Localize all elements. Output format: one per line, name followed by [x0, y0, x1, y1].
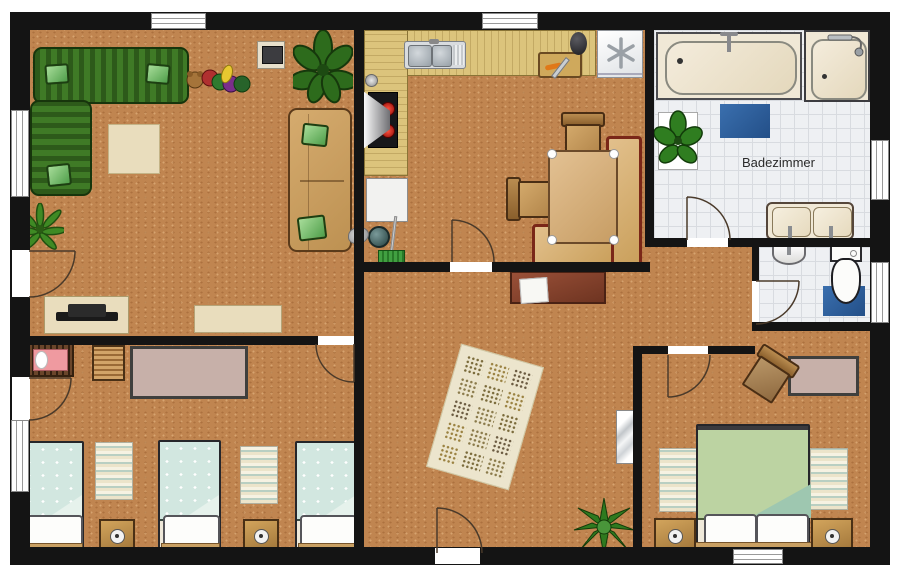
bathroom-plant	[652, 110, 704, 170]
wall-bath-hall-a	[645, 238, 687, 247]
door-gap-kids-left	[12, 377, 30, 420]
wall-wc-bottom	[752, 322, 870, 331]
bedside-rug	[240, 446, 278, 504]
door-gap-living-left	[12, 250, 30, 297]
sink-faucet	[429, 39, 439, 44]
single-bed-2	[158, 440, 221, 556]
pepper-mill	[570, 32, 587, 55]
wall-wc-left-a	[752, 247, 759, 281]
throw-pillow	[44, 63, 69, 85]
bedside-rug	[810, 448, 848, 510]
window-top-1	[151, 13, 206, 29]
bath-mat-blue	[720, 104, 770, 138]
double-washbasin	[766, 202, 854, 240]
wall-shelf	[194, 305, 282, 333]
bedside-rug	[659, 448, 697, 512]
wall-bath-hall-b	[728, 238, 870, 247]
wall-mirror	[616, 410, 634, 464]
tub-drain	[677, 58, 683, 64]
double-bed	[696, 424, 810, 554]
shower-stall	[804, 30, 870, 102]
door-gap-kids-bedroom	[318, 336, 354, 345]
mauve-rug-master	[788, 356, 859, 396]
door-gap-kitchen	[450, 262, 492, 272]
waste-bin	[368, 226, 390, 248]
window-right-2	[871, 262, 889, 323]
shower-drain	[822, 74, 827, 79]
window-top-2	[482, 13, 538, 29]
cutting-board	[538, 52, 582, 78]
throw-pillow	[145, 63, 171, 85]
wall-kids-hall	[354, 345, 364, 547]
slatted-dresser	[92, 345, 125, 381]
wall-tv	[257, 41, 285, 69]
wall-kitchen-hall-a	[354, 262, 450, 272]
kitchen-sink	[404, 41, 466, 69]
wall-hall-master	[633, 346, 642, 547]
door-gap-master-bedroom	[668, 346, 708, 354]
tv-lowboard	[44, 296, 129, 334]
wall-master-top-b	[708, 346, 755, 354]
wall-kitchen-hall-b	[492, 262, 650, 272]
wall-living-kids	[30, 336, 318, 345]
bedside-rug	[95, 442, 133, 500]
basin-faucet	[829, 226, 833, 238]
basin-faucet	[788, 226, 792, 238]
toilet	[829, 245, 861, 301]
toilet-bowl	[831, 258, 861, 304]
faucet-valve	[365, 74, 378, 87]
dining-table	[548, 150, 618, 244]
sideboard	[510, 271, 606, 304]
door-gap-wc	[752, 281, 759, 322]
dining-chair-top	[561, 112, 601, 154]
crib	[24, 341, 74, 377]
wall-kitchen-bath	[645, 30, 654, 247]
room-label-bathroom: Badezimmer	[742, 155, 815, 170]
single-bed-3	[295, 441, 358, 556]
shower-head-icon	[822, 32, 868, 58]
mauve-rug-kids	[130, 346, 248, 399]
wall-living-kitchen	[354, 30, 364, 345]
potted-plant-large	[293, 28, 353, 106]
bathtub	[656, 32, 802, 100]
coffee-rug	[108, 124, 160, 174]
window-right-1	[871, 140, 889, 200]
asterisk-icon	[609, 39, 633, 67]
floor-plan: Badezimmer	[0, 0, 900, 580]
work-desk	[366, 178, 408, 222]
dining-chair-left	[506, 176, 550, 218]
window-left-2	[11, 420, 29, 492]
window-bottom-1	[733, 549, 783, 564]
window-left-1	[11, 110, 29, 197]
wall-exterior-top	[10, 12, 890, 30]
paper-sheet	[519, 277, 549, 304]
throw-pillow	[46, 163, 72, 187]
door-gap-bathroom	[687, 238, 728, 247]
freezer	[597, 30, 643, 78]
throw-pillow	[301, 123, 329, 148]
door-gap-entrance	[435, 548, 480, 564]
toy-bear-and-caterpillar	[186, 62, 254, 98]
throw-pillow	[297, 214, 328, 241]
